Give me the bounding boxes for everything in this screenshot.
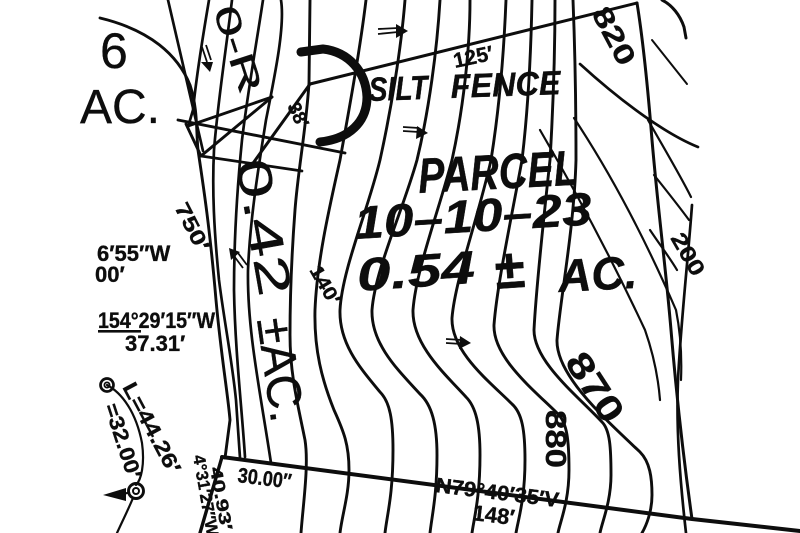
svg-text:154°29′15″W: 154°29′15″W: [98, 308, 215, 333]
svg-text:880: 880: [539, 410, 571, 468]
svg-text:37.31′: 37.31′: [125, 331, 185, 356]
svg-text:AC.: AC.: [556, 246, 639, 302]
svg-text:0.54: 0.54: [355, 241, 476, 301]
svg-text:±: ±: [492, 237, 526, 301]
svg-text:148′: 148′: [471, 500, 516, 530]
svg-text:6: 6: [100, 23, 128, 79]
svg-text:00′: 00′: [95, 262, 125, 287]
svg-text:SILT: SILT: [368, 68, 431, 108]
svg-text:AC.: AC.: [80, 81, 160, 134]
